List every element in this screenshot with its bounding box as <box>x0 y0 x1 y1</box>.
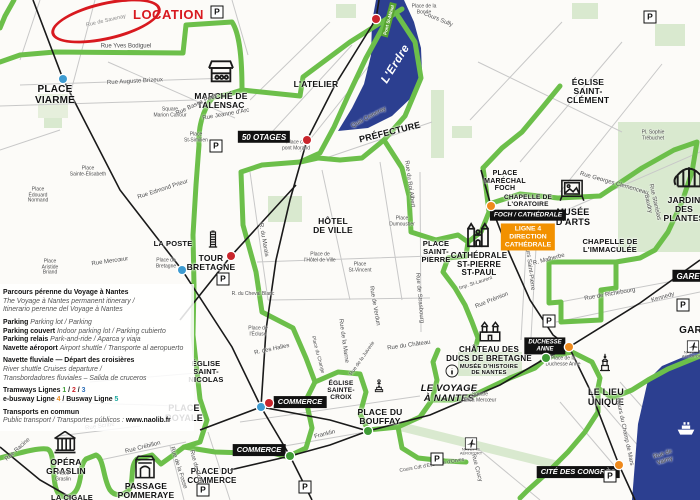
street-label: Rue Racine <box>4 437 32 463</box>
tower-icon <box>203 226 223 253</box>
legend-row: Parking couvert Indoor parking lot / Par… <box>3 328 190 337</box>
tram-station-dot <box>286 452 294 460</box>
poi-jardin-des-plantes: JARDIN DES PLANTES <box>663 196 700 224</box>
street-label: Place de Bretagne <box>156 258 176 269</box>
legend-row: The Voyage à Nantes permanent itinerary … <box>3 298 190 307</box>
poi-hotel-de-ville: HÔTEL DE VILLE <box>313 217 353 235</box>
parking-icon: P <box>217 273 230 286</box>
street-label: Rue de Savenay <box>86 14 127 29</box>
tram-station-dot <box>257 403 265 411</box>
street-label: Rue Yves Bodiguel <box>101 44 152 51</box>
legend-row: Transports en commun <box>3 409 190 418</box>
street-label: Place de la Duchesse Anne <box>545 356 580 367</box>
parking-icon: P <box>543 315 556 328</box>
street-label: Place Graslin <box>55 471 71 482</box>
badge-ligne4: LIGNE 4 DIRECTION CATHÉDRALE <box>501 223 555 250</box>
badge-commerce-upper: COMMERCE <box>274 396 327 408</box>
plane-icon <box>687 340 700 353</box>
street-label: Rue de Verdun <box>367 286 381 327</box>
street-label: Place St-Similien <box>184 132 208 143</box>
tram-station-dot <box>303 136 311 144</box>
street-label: Rue Auguste Brizeux <box>107 77 163 87</box>
poi-prefecture: PRÉFECTURE <box>358 121 421 146</box>
legend-row: Navette fluviale — Départ des croisières <box>3 357 190 366</box>
tram-station-dot <box>364 427 372 435</box>
badge-gare: GARE <box>672 270 700 282</box>
poi-l-atelier: L'ATELIER <box>294 80 339 89</box>
legend-row: Transbordadores fluviales – Salida de cr… <box>3 375 190 384</box>
street-label: Place St-Vincent <box>349 262 372 273</box>
parking-icon: P <box>604 470 617 483</box>
poi-eglise-saint-clement: ÉGLISE SAINT- CLÉMENT <box>567 78 609 106</box>
legend-row: River shuttle Cruises departure / <box>3 366 190 375</box>
pommeraye-icon <box>130 454 160 481</box>
tram-station-dot <box>227 252 235 260</box>
location-label: LOCATION <box>133 7 204 22</box>
street-label: Rue Stanislas Baudry <box>639 178 663 229</box>
poi-place-viarme: PLACE VIARME <box>35 85 75 107</box>
tram-station-dot <box>487 202 495 210</box>
street-label: Place Dumoustier <box>389 216 415 227</box>
poi-place-saint-pierre: PLACE SAINT- PIERRE <box>421 240 450 264</box>
poi-la-poste: LA POSTE <box>154 240 193 248</box>
tram-station-dot <box>372 15 380 23</box>
parking-icon: P <box>644 11 657 24</box>
poi-gare: GARE <box>679 326 700 337</box>
street-label: Cours Sully <box>423 11 454 29</box>
street-label: R. du Cheval Blanc <box>232 292 275 298</box>
street-label: Rue de Valmy <box>645 446 683 470</box>
poi-musee-d-histoire: MUSÉE D'HISTOIRE DE NANTES <box>460 364 518 377</box>
badge-duchesse-anne: DUCHESSE ANNE <box>524 337 565 354</box>
tram-station-dot <box>265 399 273 407</box>
legend-row: Parcours pérenne du Voyage à Nantes <box>3 289 190 298</box>
street-label: Cours du Champ de Mars <box>614 398 635 467</box>
street-label: Pl. Sophie Trébuchet <box>642 130 665 141</box>
frame-icon <box>559 174 586 205</box>
tram-station-dot <box>59 75 67 83</box>
street-label: Place du Change <box>309 336 324 375</box>
legend-row: e-busway Ligne 4 / Busway Ligne 5 <box>3 396 190 405</box>
street-label: Franklin <box>314 429 336 441</box>
greenhouse-icon <box>672 157 700 193</box>
map-legend: Parcours pérenne du Voyage à NantesThe V… <box>0 284 194 431</box>
statue-icon <box>371 366 387 406</box>
plane-icon <box>465 437 478 450</box>
legend-row: Itinerario perenne del Voyage à Nantes <box>3 306 190 315</box>
street-label: Rue Mercœur <box>91 256 129 268</box>
info-icon <box>444 363 460 379</box>
legend-rows: Parcours pérenne du Voyage à NantesThe V… <box>3 289 190 426</box>
tram-station-dot <box>615 461 623 469</box>
street-label: R. des Halles <box>254 343 290 357</box>
tram-station-dot <box>565 343 573 351</box>
castle-icon <box>469 318 511 344</box>
street-label: Kennedy <box>651 292 676 305</box>
poi-chapelle-de-l-immaculee: CHAPELLE DE L'IMMACULÉE <box>582 238 637 254</box>
badge-50-otages: 50 OTAGES <box>238 131 290 143</box>
lieu-unique-icon <box>595 341 615 385</box>
poi-eglise-sainte-croix: ÉGLISE SAINTE- CROIX <box>327 380 354 401</box>
street-label: Quai Ceineray <box>350 106 387 130</box>
tram-station-dot <box>178 266 186 274</box>
tram-station-dot <box>542 354 550 362</box>
parking-icon: P <box>677 299 690 312</box>
street-label: Place Édouard Normand <box>28 188 49 205</box>
street-label: Rue Edmond Prieur <box>137 179 189 202</box>
poi-cathedrale-st-pierre-st-paul: CATHÉDRALE ST-PIERRE ST-PAUL <box>451 252 508 278</box>
street-label: Rue de Strasbourg <box>413 273 424 324</box>
street-label: Place Sainte-Élisabeth <box>70 166 106 177</box>
badge-commerce-lower: COMMERCE <box>233 444 286 456</box>
street-label: Rue de la Marne <box>337 319 350 364</box>
street-label: Imp. St-Laurent <box>459 276 494 292</box>
poi-place-marechal-foch: PLACE MARÉCHAL FOCH <box>484 170 526 193</box>
street-label: Place de l'Écluse <box>248 326 267 337</box>
legend-row: Parking relais Park-and-ride / Aparca y … <box>3 336 190 345</box>
street-label: Square Élisa Mercœur <box>464 392 497 403</box>
poi-chapelle-de-l-oratoire: CHAPELLE DE L'ORATOIRE <box>504 194 552 208</box>
street-label: Rue Georges Clemenceau <box>579 171 649 197</box>
parking-icon: P <box>299 481 312 494</box>
parking-icon: P <box>431 453 444 466</box>
legend-row: Tramways Lignes 1 / 2 / 3 <box>3 387 190 396</box>
poi-passage-pommeraye: PASSAGE POMMERAYE <box>118 482 175 500</box>
market-icon <box>199 56 243 88</box>
poi-place-du-bouffay: PLACE DU BOUFFAY <box>357 408 402 426</box>
poi-la-cigale: LA CIGALE <box>51 494 93 500</box>
parking-icon: P <box>210 140 223 153</box>
legend-row: Parking Parking lot / Parking <box>3 319 190 328</box>
nantes-map: PLACE VIARMEMARCHÉ DE TALENSACL'ATELIERP… <box>0 0 700 500</box>
street-label: R. du Marais <box>257 223 270 258</box>
street-label: Rue du Château <box>387 340 431 353</box>
cathedral-icon <box>462 220 494 250</box>
parking-icon: P <box>211 6 224 19</box>
badge-pont-st-mihiel: Pont St-Mihiel <box>381 2 397 37</box>
street-label: R. Malherbe <box>532 253 565 268</box>
parking-icon: P <box>197 484 210 497</box>
street-label: Place Aristide Briand <box>42 260 59 277</box>
badge-foch-cathedrale: FOCH / CATHÉDRALE <box>490 210 566 221</box>
ferry-icon <box>671 418 700 438</box>
street-label: Rue Crucy <box>469 453 483 482</box>
legend-row: Navette aéroport Airport shuttle / Trans… <box>3 345 190 354</box>
street-label: Rue du Roi Albert <box>402 160 415 208</box>
street-label: Rue de Richebourg <box>584 287 636 303</box>
poi-chateau-des-ducs: CHÂTEAU DES DUCS DE BRETAGNE <box>446 346 532 363</box>
legend-row: Public transport / Transportes públicos … <box>3 417 190 426</box>
street-label: Place de l'Hôtel de Ville <box>304 252 335 263</box>
street-label: Rue Prémion <box>475 291 510 310</box>
opera-icon <box>45 428 85 456</box>
